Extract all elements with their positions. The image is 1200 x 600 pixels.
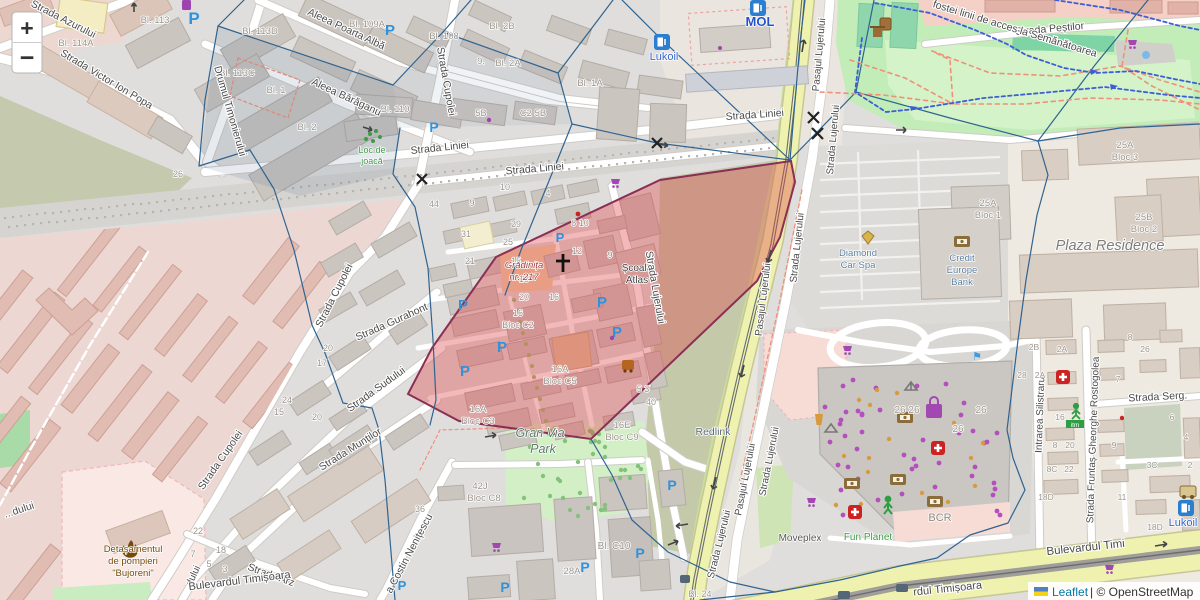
svg-text:P: P <box>667 477 676 493</box>
svg-text:Bloc 3: Bloc 3 <box>1112 152 1138 163</box>
svg-text:9.: 9. <box>477 56 485 66</box>
svg-text:22: 22 <box>1064 464 1074 474</box>
svg-text:C2 5B: C2 5B <box>520 108 546 119</box>
svg-text:18D: 18D <box>1038 492 1054 502</box>
svg-text:4: 4 <box>1184 432 1189 442</box>
svg-text:12: 12 <box>572 246 582 256</box>
svg-text:5B: 5B <box>475 108 486 118</box>
svg-text:MOL: MOL <box>746 14 775 29</box>
svg-text:Gran Via: Gran Via <box>515 426 564 440</box>
svg-text:P: P <box>385 22 395 39</box>
svg-text:8 10: 8 10 <box>571 218 589 228</box>
svg-text:P: P <box>556 230 565 245</box>
svg-text:28: 28 <box>1017 370 1027 380</box>
svg-text:Bl. 109A: Bl. 109A <box>349 19 386 30</box>
svg-text:P: P <box>497 339 507 356</box>
svg-text:Redlink: Redlink <box>695 426 731 438</box>
svg-text:9: 9 <box>469 198 474 208</box>
svg-text:Bl. 2A: Bl. 2A <box>495 58 521 69</box>
svg-text:Bloc 1: Bloc 1 <box>975 210 1001 221</box>
svg-text:Europe: Europe <box>947 265 978 276</box>
svg-text:+: + <box>20 15 33 41</box>
svg-text:18D: 18D <box>1147 522 1163 532</box>
svg-text:Diamond: Diamond <box>839 248 877 259</box>
svg-text:Moveplex: Moveplex <box>779 533 822 544</box>
svg-text:P: P <box>188 9 199 28</box>
svg-text:nr. 217: nr. 217 <box>509 272 539 283</box>
svg-text:de pompieri: de pompieri <box>108 556 158 567</box>
svg-text:Car Spa: Car Spa <box>841 260 877 271</box>
svg-text:24: 24 <box>282 395 292 405</box>
svg-text:2B: 2B <box>1029 342 1040 352</box>
svg-text:9: 9 <box>607 250 612 260</box>
svg-text:Plaza Residence: Plaza Residence <box>1056 238 1165 254</box>
svg-text:18: 18 <box>216 545 226 555</box>
svg-text:25B: 25B <box>1136 212 1153 223</box>
svg-text:15: 15 <box>274 407 284 417</box>
svg-text:25A: 25A <box>1117 140 1135 151</box>
svg-text:Bloc 2: Bloc 2 <box>1131 224 1157 235</box>
svg-text:7: 7 <box>1116 374 1121 384</box>
svg-text:16: 16 <box>513 308 523 318</box>
svg-text:P: P <box>460 363 470 380</box>
svg-text:6: 6 <box>1170 412 1175 422</box>
svg-text:Park: Park <box>530 442 556 456</box>
svg-text:16A: 16A <box>552 364 570 375</box>
svg-text:29: 29 <box>511 219 521 229</box>
svg-text:9: 9 <box>1112 440 1117 450</box>
svg-text:itm: itm <box>1071 422 1080 429</box>
svg-text:Fun Planet: Fun Planet <box>844 532 893 543</box>
svg-text:2A: 2A <box>1035 370 1046 380</box>
svg-text:Bl. 1: Bl. 1 <box>266 85 285 96</box>
svg-text:44: 44 <box>429 199 439 209</box>
svg-text:8: 8 <box>1128 332 1133 342</box>
svg-text:Bloc C5: Bloc C5 <box>543 376 576 387</box>
svg-text:3C: 3C <box>1147 460 1158 470</box>
svg-text:Lukoil: Lukoil <box>1169 517 1198 529</box>
svg-text:26: 26 <box>173 169 183 179</box>
svg-text:2: 2 <box>1188 460 1193 470</box>
svg-text:25: 25 <box>503 237 513 247</box>
svg-text:20: 20 <box>1065 440 1075 450</box>
svg-text:7: 7 <box>190 549 195 559</box>
svg-text:Bloc C9: Bloc C9 <box>605 432 638 443</box>
svg-text:⚑: ⚑ <box>972 351 982 363</box>
svg-text:Bl. 24: Bl. 24 <box>688 589 711 599</box>
svg-text:−: − <box>20 44 35 72</box>
svg-text:Bl. 113: Bl. 113 <box>141 15 170 26</box>
svg-text:Loc de: Loc de <box>358 145 385 155</box>
svg-text:16E: 16E <box>614 420 631 431</box>
svg-text:P: P <box>635 545 644 561</box>
svg-text:Bl. 113D: Bl. 113D <box>242 26 278 37</box>
svg-text:17: 17 <box>317 358 327 368</box>
svg-text:31: 31 <box>461 229 471 239</box>
svg-text:16A: 16A <box>470 404 488 415</box>
svg-text:Credit: Credit <box>949 253 975 264</box>
svg-text:4: 4 <box>545 188 550 198</box>
svg-text:21: 21 <box>465 256 475 266</box>
svg-text:8: 8 <box>1053 440 1058 450</box>
svg-text:P: P <box>429 119 438 135</box>
svg-text:Bank: Bank <box>951 277 973 288</box>
svg-text:"Bujoreni": "Bujoreni" <box>112 568 154 579</box>
svg-text:Bl. 2: Bl. 2 <box>297 122 316 133</box>
svg-text:26: 26 <box>1140 344 1150 354</box>
svg-text:16: 16 <box>1055 412 1065 422</box>
svg-text:26: 26 <box>952 424 964 435</box>
svg-text:40: 40 <box>646 397 656 407</box>
svg-text:P: P <box>597 294 607 311</box>
svg-text:8C: 8C <box>1047 464 1058 474</box>
svg-text:Bl. 2B: Bl. 2B <box>489 21 514 32</box>
svg-text:2A: 2A <box>1057 344 1068 354</box>
svg-text:Bloc C2: Bloc C2 <box>502 320 534 330</box>
svg-text:Grădinița: Grădinița <box>505 260 544 271</box>
svg-text:Bloc C3: Bloc C3 <box>461 416 494 427</box>
svg-text:Bl. 1A: Bl. 1A <box>577 78 603 89</box>
svg-text:22: 22 <box>193 526 203 536</box>
svg-text:Atlas: Atlas <box>626 275 648 286</box>
svg-text:P: P <box>458 297 468 314</box>
svg-text:16: 16 <box>549 292 559 302</box>
svg-text:Leaflet: Leaflet <box>1052 585 1089 599</box>
svg-text:P: P <box>580 559 589 575</box>
svg-text:20: 20 <box>519 292 529 302</box>
svg-text:BCR: BCR <box>928 512 951 524</box>
svg-text:11: 11 <box>1118 492 1127 502</box>
svg-text:10: 10 <box>500 182 510 192</box>
svg-text:Bl. C10: Bl. C10 <box>598 541 631 552</box>
svg-text:20: 20 <box>312 412 322 422</box>
svg-text:25A: 25A <box>980 198 998 209</box>
svg-text:Bloc C8: Bloc C8 <box>467 493 500 504</box>
svg-text:28A: 28A <box>564 566 582 577</box>
svg-text:Bl. 108: Bl. 108 <box>429 31 459 42</box>
svg-text:Detașamentul: Detașamentul <box>104 544 163 555</box>
svg-text:Bl. 110: Bl. 110 <box>381 104 410 115</box>
svg-text:26 26: 26 26 <box>894 405 919 416</box>
svg-text:20: 20 <box>323 343 333 353</box>
svg-text:Lukoil: Lukoil <box>650 51 679 63</box>
svg-text:26: 26 <box>975 405 987 416</box>
svg-text:3: 3 <box>222 564 227 574</box>
svg-text:P: P <box>500 579 509 595</box>
svg-text:joacă: joacă <box>360 156 383 166</box>
svg-text:| © OpenStreetMap: | © OpenStreetMap <box>1090 585 1194 599</box>
svg-text:5: 5 <box>206 559 211 569</box>
svg-text:5 3: 5 3 <box>637 384 650 394</box>
svg-text:42J: 42J <box>472 481 488 492</box>
svg-text:36: 36 <box>415 504 425 514</box>
